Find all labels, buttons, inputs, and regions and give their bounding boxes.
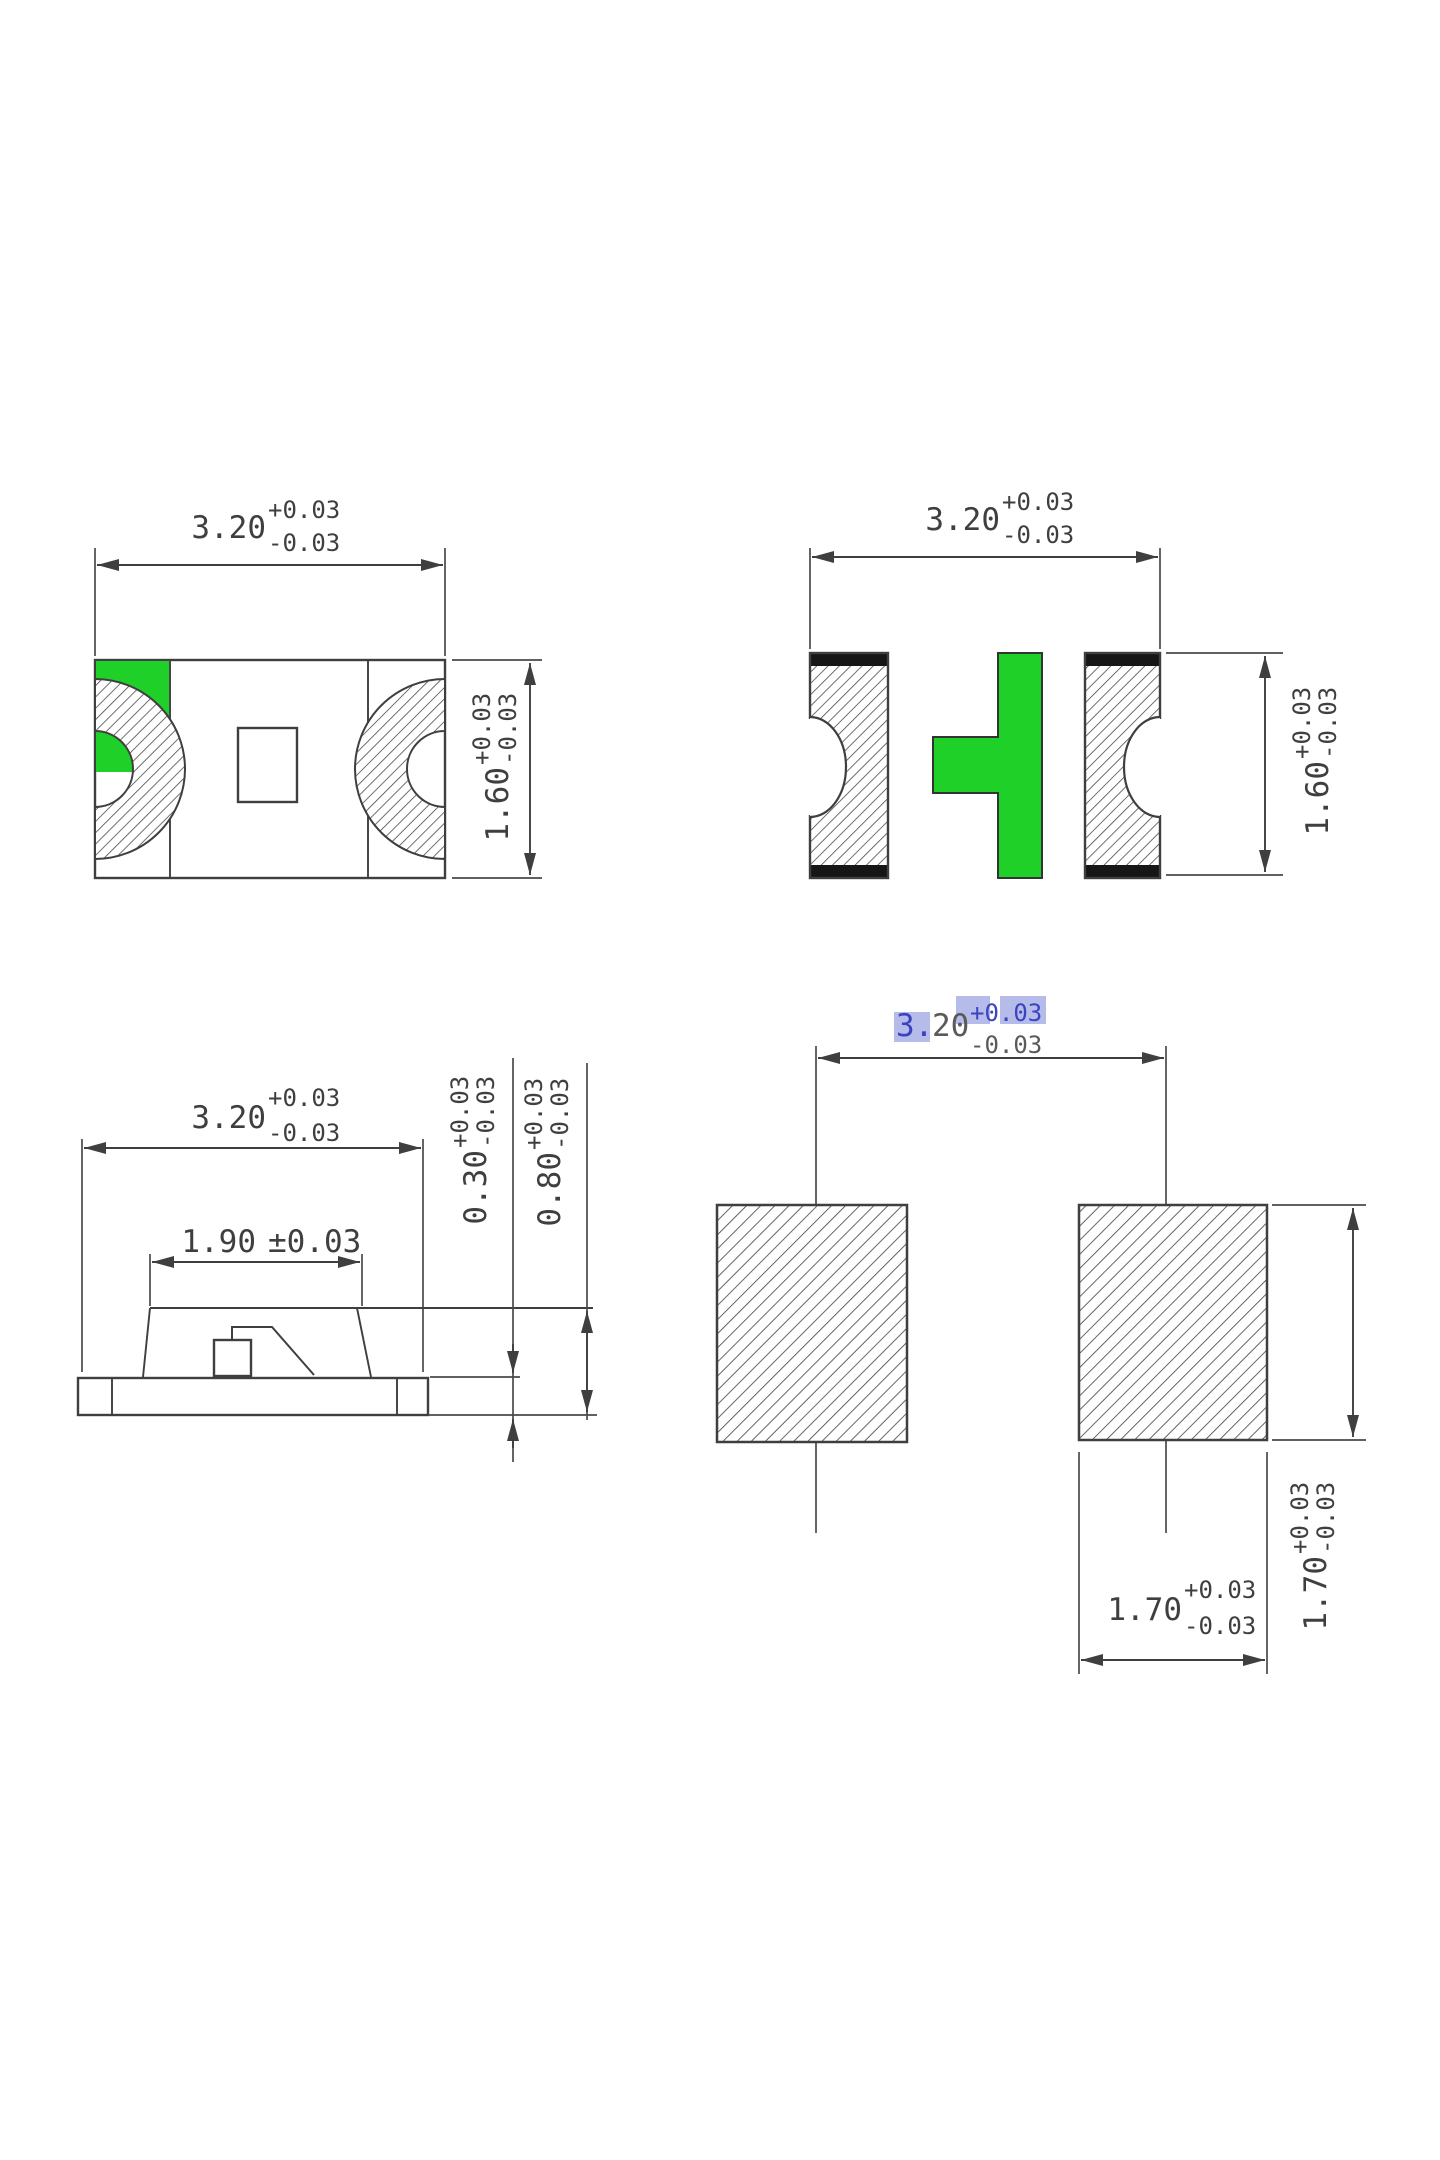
top-view: 3.20 +0.03 -0.03 1.60 +0.03 -0.03 [95, 496, 542, 878]
dim-base-label: 0.30 +0.03 -0.03 [446, 1076, 500, 1225]
dim-value: 0.30 [458, 1150, 494, 1225]
body-right-slope [357, 1308, 371, 1377]
dim-tol-minus: -0.03 [1314, 687, 1342, 759]
dim-tol-minus: -0.03 [268, 529, 340, 557]
dim-tol-minus: -0.03 [546, 1078, 574, 1150]
dim-tol-plus: +0.03 [268, 1084, 340, 1112]
terminal-left-cap-bottom [810, 865, 888, 878]
solder-pad-left [717, 1205, 907, 1442]
drawing-canvas: 3.20 +0.03 -0.03 1.60 +0.03 -0.03 3.20 +… [0, 0, 1440, 2160]
dim-tol-plus: +0.03 [446, 1076, 474, 1148]
dim-tol-plus: +0.03 [1286, 1482, 1314, 1554]
dim-value: 20 [932, 1008, 969, 1044]
dim-value-highlighted: 3. [896, 1008, 933, 1044]
body-left-slope [143, 1308, 150, 1377]
dim-tol-minus: -0.03 [472, 1076, 500, 1148]
dim-value: 3.20 [191, 1100, 266, 1136]
dim-value: 3.20 [925, 502, 1000, 538]
led-dimension-drawing: 3.20 +0.03 -0.03 1.60 +0.03 -0.03 3.20 +… [0, 0, 1440, 2160]
dim-value: 0.80 [532, 1152, 568, 1227]
dim-tol-plus: +0.03 [1002, 488, 1074, 516]
terminal-left-cap-top [810, 653, 888, 666]
terminal-right-cap-bottom [1085, 865, 1160, 878]
dim-tol-minus: -0.03 [494, 693, 522, 765]
dim-tol-plus: +0.03 [268, 496, 340, 524]
dim-height-label: 0.80 +0.03 -0.03 [520, 1078, 574, 1227]
dim-tol-minus: -0.03 [970, 1031, 1042, 1059]
chip-die [214, 1340, 251, 1376]
dim-tol: ±0.03 [268, 1224, 361, 1260]
dim-tol-plus: +0.03 [520, 1078, 548, 1150]
dim-pad-height-label: 1.70 +0.03 -0.03 [1286, 1482, 1340, 1631]
dim-height-label: 1.60 +0.03 -0.03 [468, 693, 522, 842]
dim-value: 1.60 [1300, 761, 1336, 836]
dim-value: 1.70 [1298, 1556, 1334, 1631]
bottom-view: 3.20 +0.03 -0.03 1.60 +0.03 -0.03 [810, 488, 1342, 878]
dim-value: 1.90 [181, 1224, 256, 1260]
dim-value: 3.20 [191, 510, 266, 546]
dim-tol-plus: +0.03 [1184, 1576, 1256, 1604]
side-view: 3.20 +0.03 -0.03 1.90 ±0.03 0.30 +0.03 -… [78, 1058, 597, 1462]
terminal-right-cap-top [1085, 653, 1160, 666]
dim-tol-plus: +0.03 [1288, 687, 1316, 759]
dim-tol-minus: -0.03 [1184, 1612, 1256, 1640]
solder-pad-right [1079, 1205, 1267, 1440]
dim-value: 1.70 [1107, 1592, 1182, 1628]
dim-value: 1.60 [480, 767, 516, 842]
dim-tol-minus: -0.03 [268, 1119, 340, 1147]
dim-tol-plus: +0.03 [970, 999, 1042, 1027]
base-strip [78, 1378, 428, 1415]
dim-tol-minus: -0.03 [1312, 1482, 1340, 1554]
pad-layout-view: 3. 20 +0.03 -0.03 1.70 +0.03 -0.03 1.70 … [717, 996, 1366, 1674]
cathode-mark-green-t [933, 653, 1042, 878]
dim-tol-minus: -0.03 [1002, 521, 1074, 549]
dim-height-label: 1.60 +0.03 -0.03 [1288, 687, 1342, 836]
dim-tol-plus: +0.03 [468, 693, 496, 765]
chip-square [238, 728, 297, 802]
